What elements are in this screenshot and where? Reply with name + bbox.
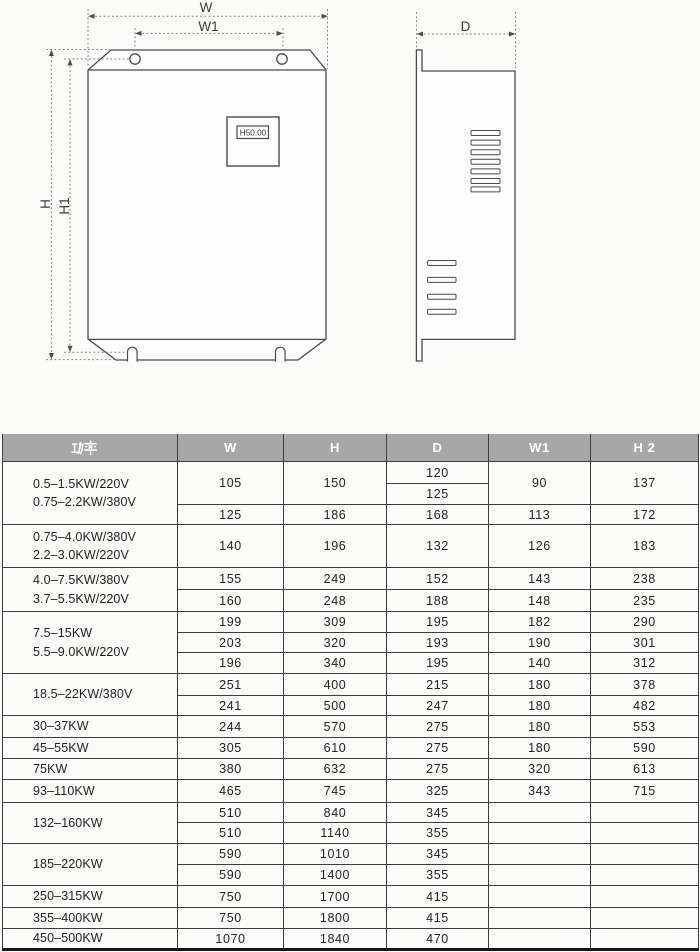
svg-text:H50.00: H50.00 — [240, 129, 267, 138]
svg-text:H1: H1 — [57, 197, 72, 214]
svg-text:W1: W1 — [198, 19, 218, 34]
svg-text:W: W — [200, 0, 213, 15]
svg-text:H: H — [38, 199, 53, 209]
svg-text:D: D — [461, 19, 471, 34]
